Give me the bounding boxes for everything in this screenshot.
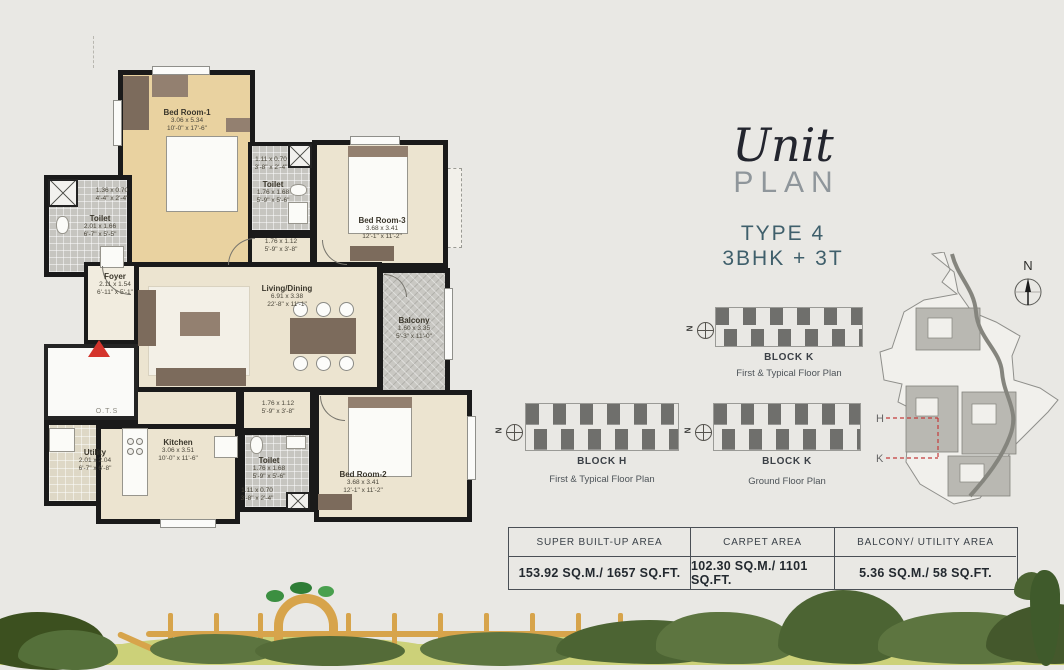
keyplan3-north-letter: N <box>683 428 692 434</box>
keyplan2-compass-icon <box>506 424 523 441</box>
window <box>350 136 400 145</box>
bush <box>656 612 796 664</box>
room-dim-m: 1.11 x 0.70 <box>238 156 304 164</box>
entry-arrow <box>88 340 110 357</box>
room-dim-ft: 10'-0" x 11'-6" <box>128 455 228 463</box>
label-pass-bottom: 1.76 x 1.12 5'-9" x 3'-8" <box>243 400 313 415</box>
coffee-table <box>180 312 220 336</box>
keyplan2-block-label: BLOCK H <box>526 456 678 467</box>
room-dim-ft: 22'-8" x 11'-1" <box>227 301 347 309</box>
room-name: Toilet <box>60 214 140 223</box>
shower-tray <box>100 246 124 268</box>
dining-chair <box>339 356 354 371</box>
label-balcony: Balcony 1.60 x 3.35 5'-3" x 11'-0" <box>379 316 449 341</box>
brochure-page: { "title": { "script": "Unit", "caps": "… <box>0 0 1064 665</box>
keyplan1-compass-icon <box>697 322 714 339</box>
room-dim-ft: 6'-7" x 6'-8" <box>55 465 135 473</box>
projection-dashed-line <box>93 36 94 68</box>
label-living: Living/Dining 6.91 x 3.38 22'-8" x 11'-1… <box>227 284 347 309</box>
area-value: 5.36 SQ.M./ 58 SQ.FT. <box>835 557 1016 589</box>
keyplan1-north-letter: N <box>685 326 694 332</box>
room-dim-m: 3.06 x 5.34 <box>127 117 247 125</box>
compass-needle <box>1025 278 1031 292</box>
keyplan2-footprint <box>526 404 678 450</box>
window <box>152 66 210 75</box>
building-court <box>972 404 996 424</box>
sitemap-label-k: K <box>876 453 884 465</box>
room-name: Kitchen <box>128 438 228 447</box>
room-name: Living/Dining <box>227 284 347 293</box>
bed <box>166 136 238 212</box>
site-map: N H K <box>862 252 1062 514</box>
room-dim-ft: 4'-4" x 2'-4" <box>72 195 152 203</box>
label-bedroom1: Bed Room-1 3.06 x 5.34 10'-0" x 17'-6" <box>127 108 247 133</box>
room-dim-m: 3.06 x 3.51 <box>128 447 228 455</box>
dining-chair <box>316 356 331 371</box>
room-dim-m: 1.76 x 1.12 <box>246 238 316 246</box>
page-title-caps: PLAN <box>703 166 863 200</box>
compass-north-label: N <box>1023 258 1032 273</box>
keyplan3-compass-icon <box>695 424 712 441</box>
room-dim-m: 2.01 x 2.04 <box>55 457 135 465</box>
sofa-main <box>156 368 246 386</box>
room-dim-m: 1.76 x 1.68 <box>234 465 304 473</box>
bush <box>255 636 405 666</box>
label-utility: Utility 2.01 x 2.04 6'-7" x 6'-8" <box>55 448 135 473</box>
window <box>160 519 216 528</box>
label-ots: O.T.S <box>77 408 137 416</box>
label-toilet-bottom: Toilet 1.76 x 1.68 5'-9" x 5'-6" <box>234 456 304 481</box>
room-dim-ft: 12'-1" x 11'-2" <box>303 487 423 495</box>
area-header: BALCONY/ UTILITY AREA <box>835 528 1016 557</box>
bush <box>18 630 118 670</box>
room-dim-ft: 6'-7" x 5'-5" <box>60 231 140 239</box>
dining-chair <box>293 356 308 371</box>
room-name: Balcony <box>379 316 449 325</box>
floor-plan: Bed Room-1 3.06 x 5.34 10'-0" x 17'-6" 1… <box>0 0 500 560</box>
area-col-super-builtup: SUPER BUILT-UP AREA 153.92 SQ.M./ 1657 S… <box>509 528 690 589</box>
area-header: SUPER BUILT-UP AREA <box>509 528 690 557</box>
bed-headboard <box>348 146 408 157</box>
room-dim-m: 6.91 x 3.38 <box>227 293 347 301</box>
room-dim-m: 2.01 x 1.66 <box>60 223 140 231</box>
room-name: Bed Room-3 <box>322 216 442 225</box>
desk <box>318 494 352 510</box>
window <box>113 100 122 146</box>
room-dim-ft: 3'-8" x 2'-4" <box>226 495 288 503</box>
unit-type-line1: TYPE 4 <box>683 222 883 246</box>
arch-vine <box>266 590 284 602</box>
arch-vine <box>318 586 334 597</box>
room-name: O.T.S <box>77 408 137 416</box>
room-name: Bed Room-2 <box>303 470 423 479</box>
label-toilet-left: Toilet 2.01 x 1.66 6'-7" x 5'-5" <box>60 214 140 239</box>
room-dim-m: 2.11 x 1.54 <box>85 281 145 289</box>
room-name: Toilet <box>240 180 306 189</box>
label-toilet-mid: Toilet 1.76 x 1.68 5'-9" x 5'-6" <box>240 180 306 205</box>
label-bedroom3: Bed Room-3 3.68 x 3.41 12'-1" x 11'-2" <box>322 216 442 241</box>
room-dim-ft: 5'-9" x 3'-8" <box>246 246 316 254</box>
area-value: 153.92 SQ.M./ 1657 SQ.FT. <box>509 557 690 589</box>
area-col-carpet: CARPET AREA 102.30 SQ.M./ 1101 SQ.FT. <box>690 528 834 589</box>
shower-tray <box>288 202 308 224</box>
label-foyer: Foyer 2.11 x 1.54 6'-11" x 5'-1" <box>85 272 145 297</box>
label-pass-bot: 1.11 x 0.70 3'-8" x 2'-4" <box>226 487 288 502</box>
keyplan1-caption: First & Typical Floor Plan <box>706 368 872 379</box>
wc <box>250 436 263 454</box>
keyplan1-block-label: BLOCK K <box>716 352 862 363</box>
keyplan3-block-label: BLOCK K <box>714 456 860 467</box>
room-name: Toilet <box>234 456 304 465</box>
dresser <box>152 75 188 97</box>
room-dim-m: 3.68 x 3.41 <box>322 225 442 233</box>
label-bedroom2: Bed Room-2 3.68 x 3.41 12'-1" x 11'-2" <box>303 470 423 495</box>
label-pass-mid: 1.76 x 1.12 5'-9" x 3'-8" <box>246 238 316 253</box>
sofa-side <box>138 290 156 346</box>
label-pass-left: 1.36 x 0.70 4'-4" x 2'-4" <box>72 187 152 202</box>
room-name: Utility <box>55 448 135 457</box>
area-header: CARPET AREA <box>691 528 834 557</box>
bed-headboard <box>348 397 412 408</box>
dining-table <box>290 318 356 354</box>
unit-type-line2: 3BHK + 3T <box>683 247 883 271</box>
room-dim-ft: 12'-1" x 11'-2" <box>322 233 442 241</box>
room-dim-m: 1.76 x 1.68 <box>240 189 306 197</box>
room-dim-ft: 10'-0" x 17'-6" <box>127 125 247 133</box>
room-dim-m: 1.11 x 0.70 <box>226 487 288 495</box>
desk <box>350 246 394 261</box>
keyplan2-caption: First & Typical Floor Plan <box>516 474 688 485</box>
room-name: Bed Room-1 <box>127 108 247 117</box>
area-col-balcony-utility: BALCONY/ UTILITY AREA 5.36 SQ.M./ 58 SQ.… <box>834 528 1016 589</box>
room-dim-ft: 5'-9" x 5'-6" <box>234 473 304 481</box>
page-title-script: Unit <box>703 118 863 172</box>
room-dim-ft: 5'-9" x 5'-6" <box>240 197 306 205</box>
room-dim-m: 1.76 x 1.12 <box>243 400 313 408</box>
sitemap-label-h: H <box>876 413 884 425</box>
room-dim-ft: 5'-9" x 3'-8" <box>243 408 313 416</box>
bed <box>348 397 412 477</box>
arch-vine <box>290 582 312 594</box>
room-name: Foyer <box>85 272 145 281</box>
keyplan3-caption: Ground Floor Plan <box>704 476 870 487</box>
room-dim-ft: 6'-11" x 5'-1" <box>85 289 145 297</box>
room-dim-ft: 5'-3" x 11'-0" <box>379 333 449 341</box>
building-court <box>928 318 952 338</box>
keyplan3-footprint <box>714 404 860 450</box>
room-dim-m: 1.60 x 3.35 <box>379 325 449 333</box>
label-kitchen: Kitchen 3.06 x 3.51 10'-0" x 11'-6" <box>128 438 228 463</box>
area-table: SUPER BUILT-UP AREA 153.92 SQ.M./ 1657 S… <box>508 527 1018 590</box>
room-dim-ft: 3'-8" x 2'-4" <box>238 164 304 172</box>
keyplan1-footprint <box>716 308 862 346</box>
label-pass-top: 1.11 x 0.70 3'-8" x 2'-4" <box>238 156 304 171</box>
building-cluster <box>906 386 958 452</box>
room-dim-m: 1.36 x 0.70 <box>72 187 152 195</box>
wash-basin <box>286 436 306 449</box>
building-court <box>960 464 984 482</box>
building-court <box>916 398 938 416</box>
area-value: 102.30 SQ.M./ 1101 SQ.FT. <box>691 557 834 589</box>
window <box>467 416 476 480</box>
keyplan2-north-letter: N <box>494 428 503 434</box>
room-dim-m: 3.68 x 3.41 <box>303 479 423 487</box>
